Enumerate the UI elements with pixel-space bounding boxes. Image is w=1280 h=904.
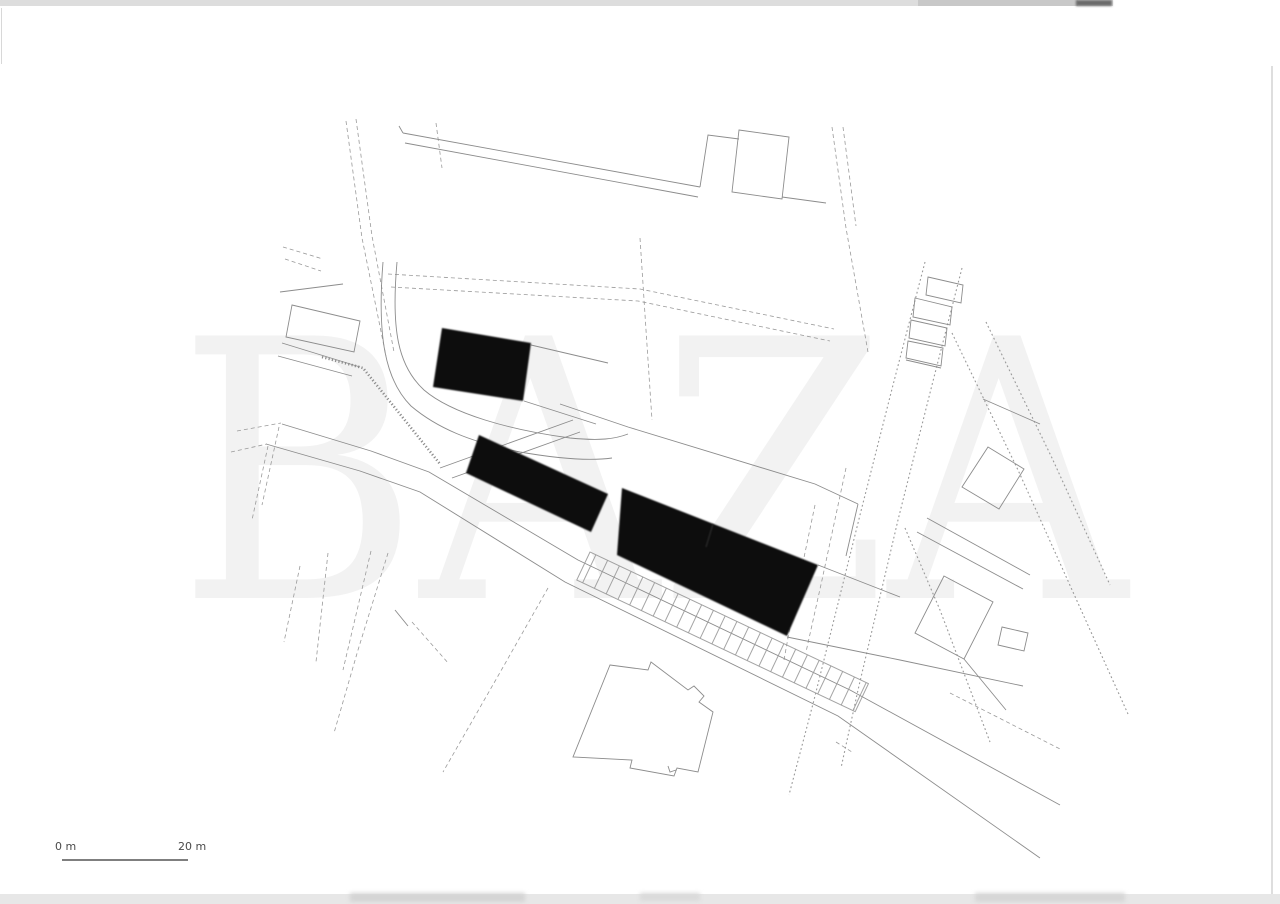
scale-bar-zero-label: 0 m: [55, 840, 76, 853]
scale-bar-20m-label: 20 m: [178, 840, 206, 853]
site-plan-drawing: BAZA: [0, 0, 1280, 904]
scale-bar: 0 m 20 m: [55, 840, 206, 860]
site-plan-page: BAZA: [0, 0, 1280, 904]
